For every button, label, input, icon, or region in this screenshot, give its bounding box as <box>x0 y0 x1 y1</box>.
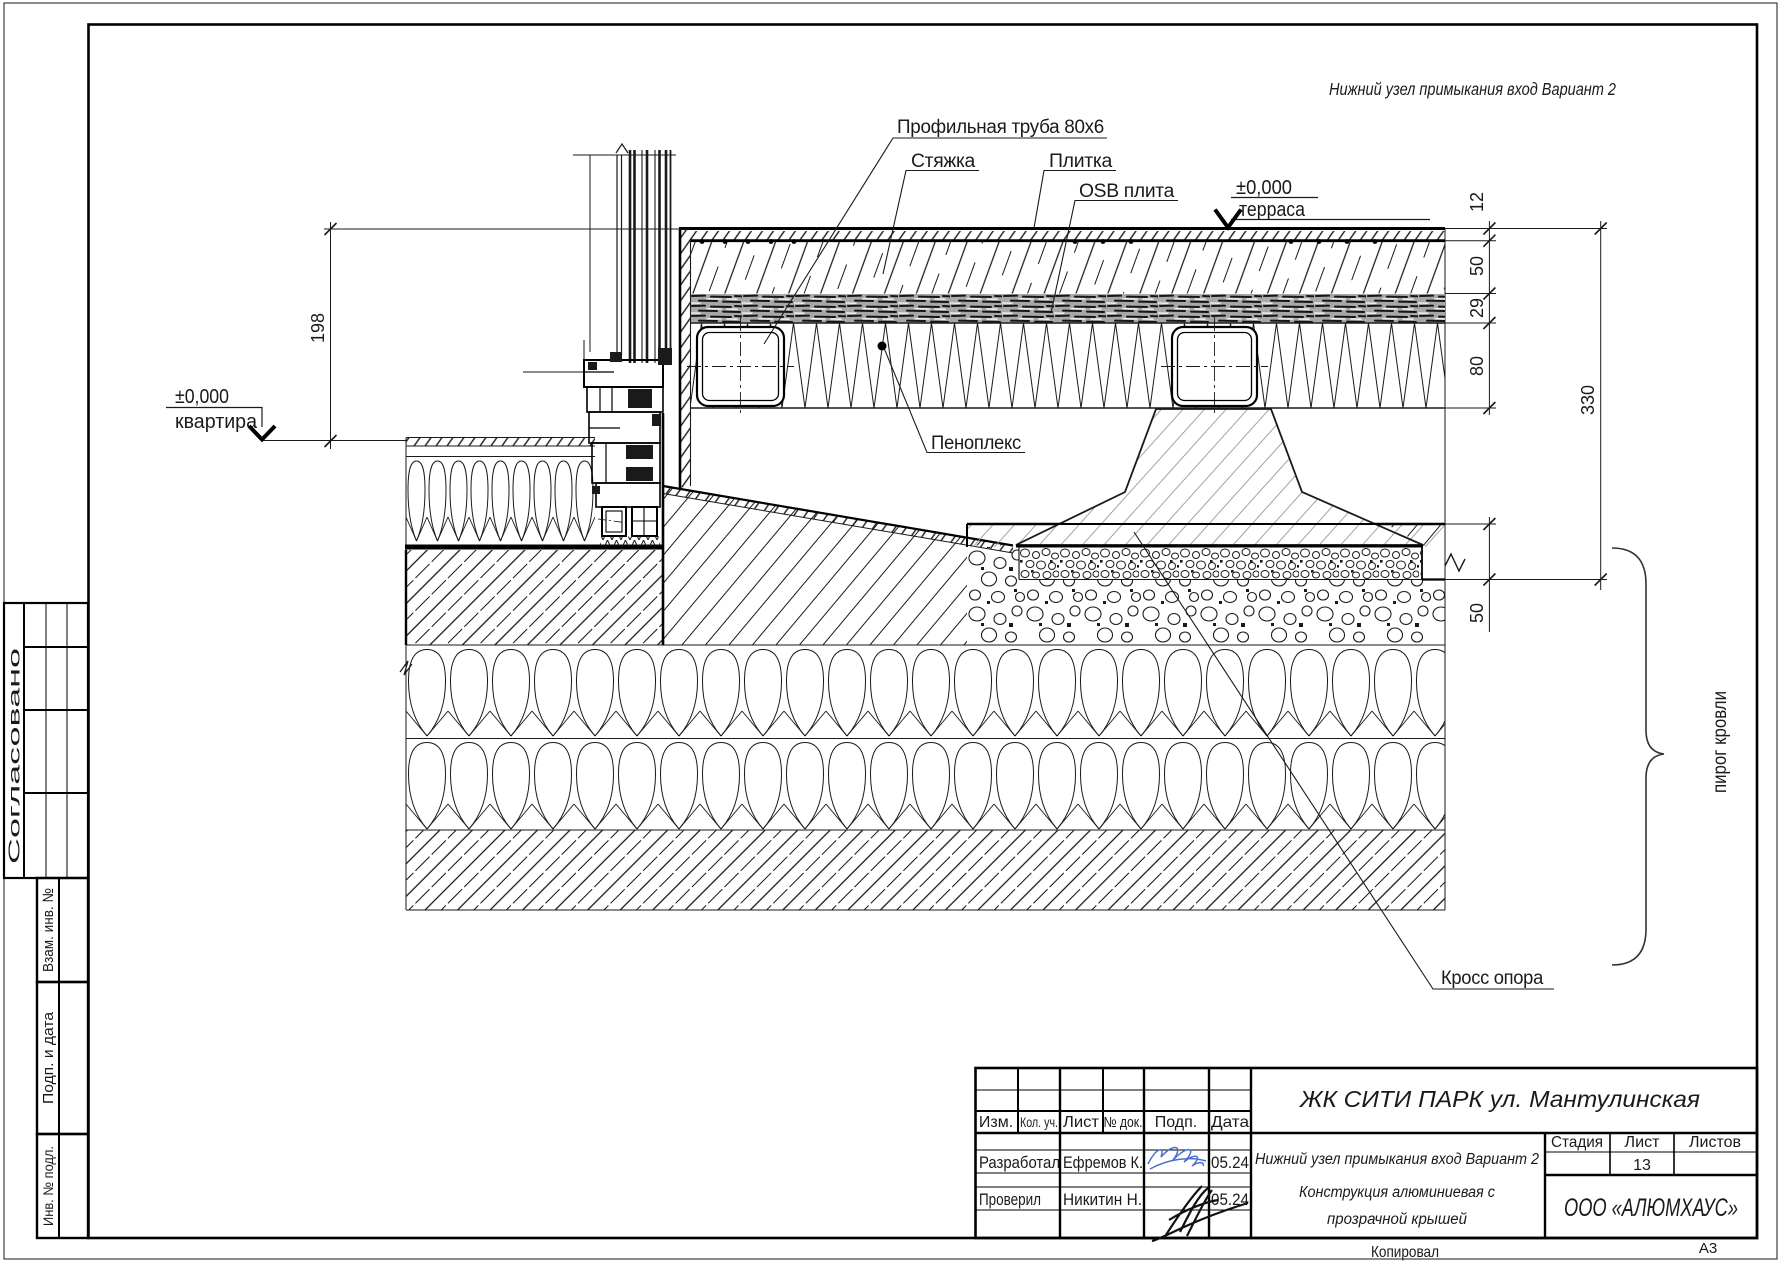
svg-text:330: 330 <box>1578 385 1598 415</box>
svg-text:терраса: терраса <box>1239 199 1306 221</box>
svg-text:Дата: Дата <box>1211 1114 1249 1131</box>
svg-text:Изм.: Изм. <box>979 1114 1013 1131</box>
svg-text:Стяжка: Стяжка <box>911 151 976 172</box>
svg-text:Подп.: Подп. <box>1155 1114 1198 1131</box>
svg-text:Ефремов К.: Ефремов К. <box>1063 1153 1143 1172</box>
svg-text:№ док.: № док. <box>1104 1115 1143 1131</box>
svg-text:Согласовано: Согласовано <box>7 648 24 864</box>
svg-text:Кросс опора: Кросс опора <box>1441 968 1544 989</box>
svg-text:Лист: Лист <box>1625 1134 1661 1151</box>
svg-text:±0,000: ±0,000 <box>1236 177 1292 199</box>
svg-text:Профильная труба 80х6: Профильная труба 80х6 <box>897 117 1104 138</box>
svg-text:Плитка: Плитка <box>1049 151 1113 172</box>
svg-text:ЖК СИТИ ПАРК ул. Мантулинская: ЖК СИТИ ПАРК ул. Мантулинская <box>1299 1086 1700 1112</box>
svg-text:прозрачной крышей: прозрачной крышей <box>1327 1211 1467 1228</box>
svg-text:12: 12 <box>1467 192 1487 212</box>
svg-text:А3: А3 <box>1699 1240 1717 1257</box>
svg-text:Стадия: Стадия <box>1551 1134 1603 1151</box>
svg-text:Взам. инв. №: Взам. инв. № <box>40 888 57 972</box>
svg-text:50: 50 <box>1467 603 1487 623</box>
svg-text:50: 50 <box>1467 256 1487 276</box>
svg-text:Нижний узел примыкания вход Ва: Нижний узел примыкания вход Вариант 2 <box>1255 1151 1539 1168</box>
svg-text:Лист: Лист <box>1063 1114 1100 1131</box>
svg-text:±0,000: ±0,000 <box>175 386 229 408</box>
svg-text:пирог кровли: пирог кровли <box>1710 691 1731 793</box>
svg-text:Листов: Листов <box>1689 1134 1741 1151</box>
svg-text:Разработал: Разработал <box>979 1153 1060 1172</box>
svg-text:Кол. уч.: Кол. уч. <box>1020 1115 1058 1130</box>
svg-text:OSB плита: OSB плита <box>1079 181 1175 202</box>
svg-text:Копировал: Копировал <box>1371 1244 1439 1261</box>
svg-text:Проверил: Проверил <box>979 1190 1041 1209</box>
svg-text:ООО «АЛЮМХАУС»: ООО «АЛЮМХАУС» <box>1564 1194 1738 1222</box>
svg-text:Подп. и дата: Подп. и дата <box>40 1011 57 1104</box>
svg-text:Нижний узел примыкания вход Ва: Нижний узел примыкания вход Вариант 2 <box>1329 79 1616 99</box>
svg-text:квартира: квартира <box>175 411 258 433</box>
svg-text:Инв. № подл.: Инв. № подл. <box>40 1146 56 1226</box>
svg-text:05.24: 05.24 <box>1211 1153 1249 1172</box>
svg-text:Конструкция алюминиевая с: Конструкция алюминиевая с <box>1299 1184 1495 1201</box>
svg-text:13: 13 <box>1633 1157 1651 1174</box>
svg-text:198: 198 <box>308 313 328 343</box>
svg-text:29: 29 <box>1467 298 1487 318</box>
svg-text:80: 80 <box>1467 356 1487 376</box>
svg-text:Никитин Н.: Никитин Н. <box>1063 1190 1142 1209</box>
svg-text:Пеноплекс: Пеноплекс <box>931 433 1021 454</box>
